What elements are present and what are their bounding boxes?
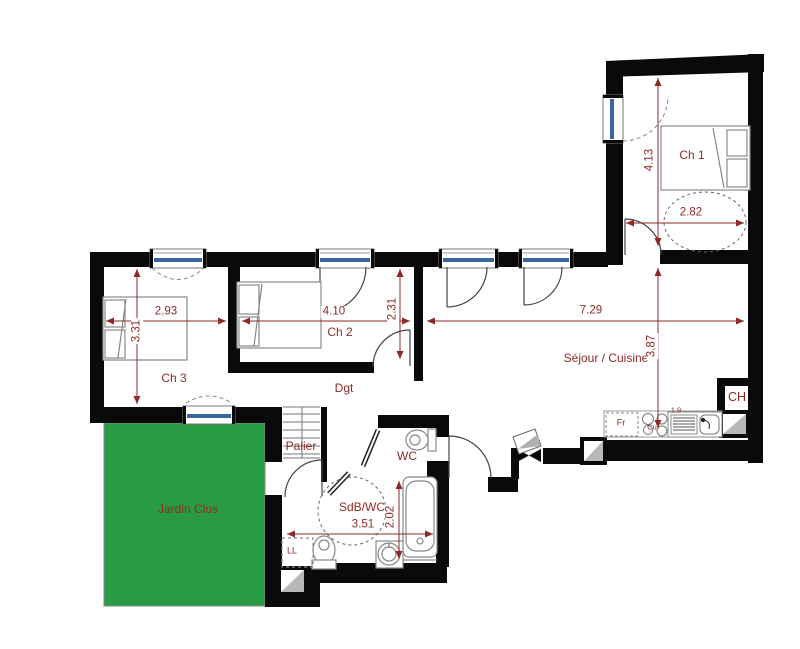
window-ch2 <box>316 249 374 268</box>
dim-sdb-height: 2.02 <box>385 504 397 530</box>
room-label-ch3: Ch 3 <box>161 372 186 384</box>
entry-door-leaf <box>513 429 541 454</box>
bed-ch2 <box>237 282 321 348</box>
sdb-partitions <box>329 430 378 494</box>
bathtub <box>403 477 437 560</box>
floor-plan-drawing <box>0 0 800 649</box>
window-jardin <box>183 406 235 424</box>
window-ch3 <box>150 249 206 268</box>
fridge-label: Fr <box>617 419 626 428</box>
cooktop-label: Cu <box>647 423 657 431</box>
room-label-ch2: Ch 2 <box>327 326 352 338</box>
room-label-ch1: Ch 1 <box>679 149 704 161</box>
dim-sdb-width: 3.51 <box>350 519 376 531</box>
counter-dim-label: 1.9 <box>671 406 681 414</box>
dim-ch2-width: 4.10 <box>321 306 347 318</box>
dim-ch1-width: 2.82 <box>678 207 704 219</box>
room-label-jardin-clos: Jardin Clos <box>158 503 218 515</box>
room-label-sdb-wc: SdB/WC <box>339 501 385 513</box>
room-label-dgt: Dgt <box>335 382 354 394</box>
dim-sejour-width: 7.29 <box>578 305 604 317</box>
window-sejour-2 <box>519 249 573 268</box>
dim-sejour-height: 3.87 <box>646 333 658 359</box>
dim-ch1-height: 4.13 <box>644 147 656 173</box>
room-label-palier: Palier <box>286 440 317 452</box>
sink-unit <box>668 412 722 437</box>
dim-dgt-depth: 2.31 <box>387 296 399 322</box>
toilet-wc <box>406 429 436 451</box>
closet-label-ch: CH <box>728 391 746 404</box>
turning-circles <box>318 192 746 545</box>
dim-ch3-width: 2.93 <box>153 306 179 318</box>
washing-machine-label: LL <box>287 547 297 556</box>
room-label-sejour-cuisine: Séjour / Cuisine <box>564 352 649 364</box>
dim-ch3-height: 3.31 <box>131 318 143 344</box>
window-sejour-1 <box>439 249 498 268</box>
window-ch1 <box>603 95 623 143</box>
room-label-wc: WC <box>397 450 417 462</box>
bed-ch1 <box>661 126 750 190</box>
washbasin <box>312 536 336 569</box>
floor-plan: Ch 1 Ch 2 Ch 3 Dgt Séjour / Cuisine WC S… <box>0 0 800 649</box>
